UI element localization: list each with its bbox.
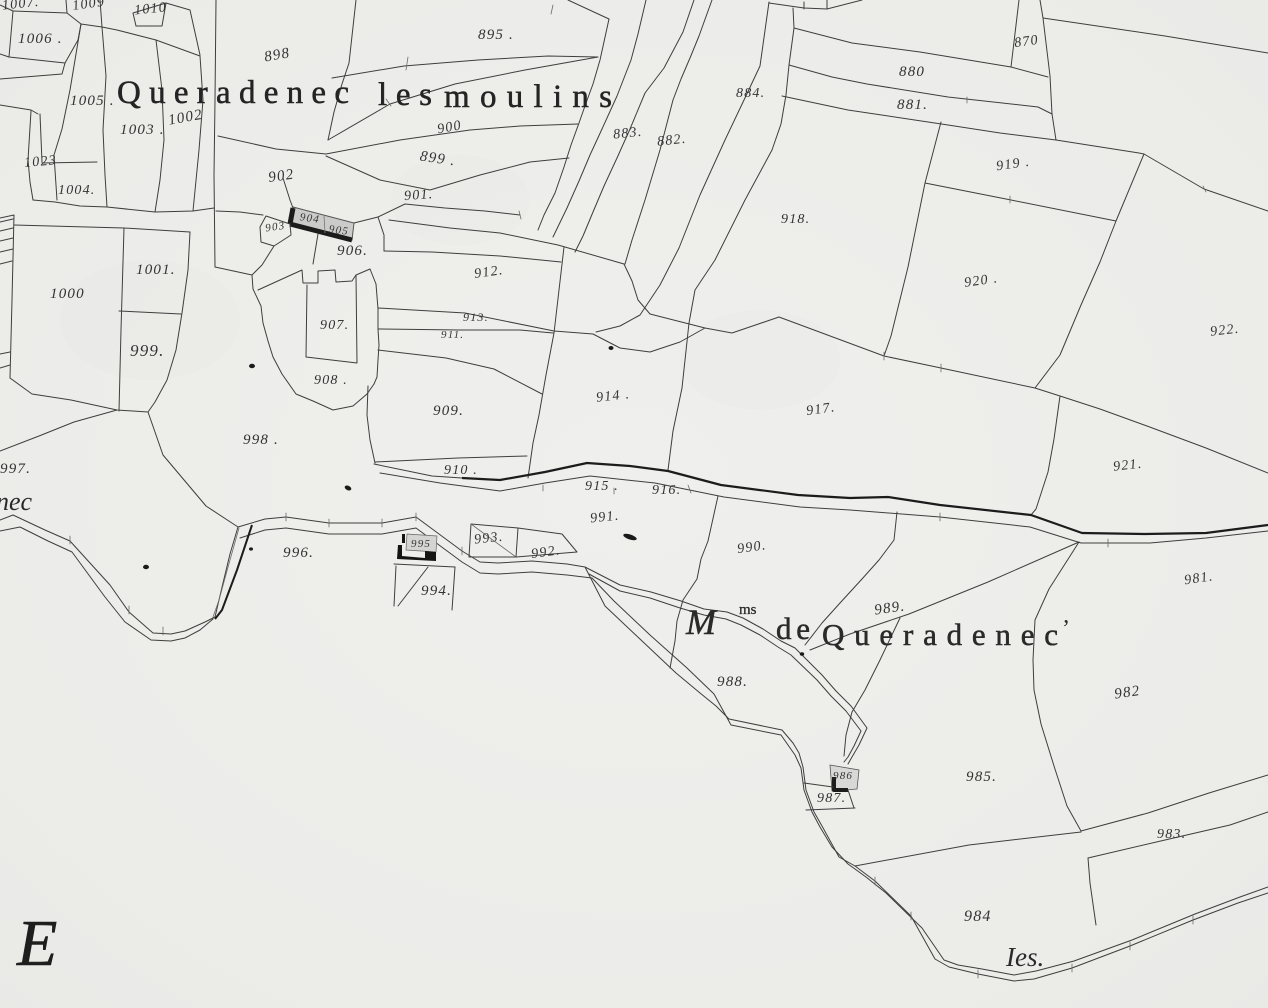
svg-text:996.: 996. bbox=[283, 545, 314, 561]
svg-text:880: 880 bbox=[899, 64, 925, 80]
svg-text:986: 986 bbox=[833, 770, 853, 782]
svg-text:881.: 881. bbox=[897, 97, 928, 113]
svg-text:Ies.: Ies. bbox=[1005, 942, 1044, 972]
svg-text:1003 .: 1003 . bbox=[120, 122, 165, 138]
svg-text:913.: 913. bbox=[463, 310, 489, 324]
svg-text:’: ’ bbox=[1062, 616, 1070, 642]
svg-text:ms: ms bbox=[739, 602, 757, 618]
svg-text:985.: 985. bbox=[966, 769, 997, 785]
svg-text:895 .: 895 . bbox=[478, 27, 514, 43]
svg-text:995: 995 bbox=[411, 538, 431, 550]
svg-text:1001.: 1001. bbox=[136, 262, 176, 278]
svg-text:909.: 909. bbox=[433, 403, 464, 419]
svg-text:983.: 983. bbox=[1157, 827, 1186, 842]
svg-text:E: E bbox=[16, 907, 57, 980]
svg-text:997.: 997. bbox=[0, 461, 31, 477]
svg-text:999.: 999. bbox=[130, 341, 165, 360]
svg-text:1023: 1023 bbox=[24, 153, 58, 171]
svg-text:907.: 907. bbox=[320, 318, 349, 333]
svg-text:M: M bbox=[685, 602, 718, 642]
svg-text:884.: 884. bbox=[736, 86, 765, 101]
svg-text:922.: 922. bbox=[1209, 322, 1240, 340]
svg-text:les: les bbox=[378, 77, 432, 113]
svg-text:991.: 991. bbox=[589, 509, 620, 527]
svg-text:901.: 901. bbox=[404, 187, 434, 204]
svg-text:921.: 921. bbox=[1112, 457, 1143, 475]
svg-text:1000: 1000 bbox=[50, 286, 85, 302]
svg-text:882.: 882. bbox=[656, 132, 687, 150]
svg-text:998 .: 998 . bbox=[243, 432, 279, 448]
svg-text:nec: nec bbox=[0, 487, 33, 516]
svg-text:915 .: 915 . bbox=[585, 479, 619, 494]
svg-text:906.: 906. bbox=[337, 243, 368, 259]
svg-text:993.: 993. bbox=[473, 530, 504, 548]
svg-text:910 .: 910 . bbox=[444, 463, 478, 478]
svg-text:994.: 994. bbox=[421, 583, 452, 599]
svg-text:1006 .: 1006 . bbox=[18, 31, 63, 47]
svg-text:984: 984 bbox=[964, 908, 992, 925]
svg-text:918.: 918. bbox=[781, 212, 810, 227]
svg-text:1005 .: 1005 . bbox=[70, 93, 115, 109]
svg-text:911.: 911. bbox=[441, 329, 464, 341]
svg-text:988.: 988. bbox=[717, 674, 748, 690]
svg-text:883.: 883. bbox=[612, 125, 643, 143]
svg-text:987.: 987. bbox=[817, 791, 846, 806]
svg-text:908 .: 908 . bbox=[314, 373, 348, 388]
svg-text:916.: 916. bbox=[652, 483, 681, 498]
svg-text:1004.: 1004. bbox=[58, 183, 96, 198]
